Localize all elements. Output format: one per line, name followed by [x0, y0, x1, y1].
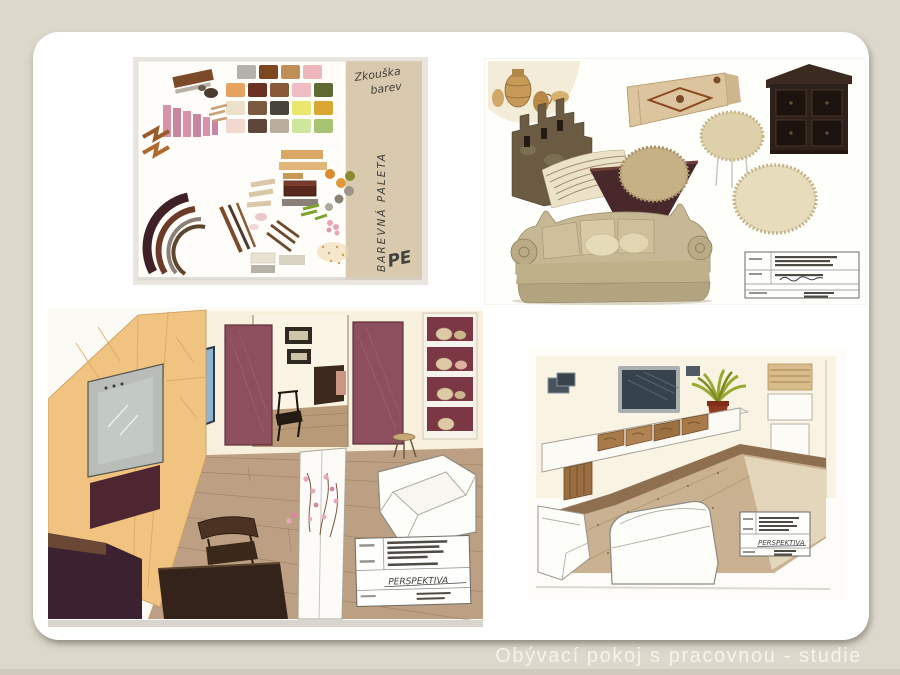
- palette-swatch: [314, 83, 333, 97]
- palette-swatch: [292, 119, 311, 133]
- palette-swatch: [303, 65, 322, 79]
- moodboard-image: [484, 58, 866, 305]
- drawing-titleblock: PERSPEKTIVA: [740, 512, 810, 556]
- wall-frame-small: [686, 366, 700, 376]
- color-test-sheet-image: Zkouška barev BAREVNÁ PALETA PE: [133, 57, 428, 285]
- red-shelving-unit: [423, 313, 477, 439]
- planter-divider: [298, 448, 346, 619]
- color-test-sheet-drawing: Zkouška barev BAREVNÁ PALETA PE: [133, 57, 428, 285]
- palette-swatch: [314, 119, 333, 133]
- scan-edge: [48, 620, 483, 627]
- slide-caption: Obývací pokoj s pracovnou - studie: [495, 645, 862, 668]
- desk: [158, 563, 288, 619]
- pouf-cream-big-photo: [734, 165, 816, 233]
- right-cabinet: [768, 364, 812, 456]
- palette-swatch: [292, 83, 311, 97]
- moodboard-collage: [484, 58, 866, 305]
- palette-swatch: [237, 65, 256, 79]
- presentation-slide: Zkouška barev BAREVNÁ PALETA PE: [0, 0, 900, 675]
- palette-swatch: [270, 101, 289, 115]
- dark-cabinet-photo: [766, 64, 852, 154]
- slide-edge-shading: [0, 669, 900, 675]
- wall-tv: [618, 366, 680, 413]
- palette-swatch: [270, 119, 289, 133]
- palette-swatch: [292, 101, 311, 115]
- palette-swatch: [248, 83, 267, 97]
- slide-content-card: Zkouška barev BAREVNÁ PALETA PE: [33, 32, 869, 640]
- scan-shadow: [138, 277, 422, 280]
- palette-swatch: [248, 101, 267, 115]
- palette-swatch: [248, 119, 267, 133]
- pouf-tan-photo: [620, 147, 688, 201]
- drawing-titleblock: PERSPEKTIVA: [355, 536, 471, 607]
- palette-swatch: [226, 119, 245, 133]
- wood-drawer-unit: [564, 462, 592, 500]
- perspective-drawing-small: PERSPEKTIVA: [528, 348, 846, 600]
- palette-swatch: [270, 83, 289, 97]
- palette-swatch: [314, 101, 333, 115]
- study-room-perspective: PERSPEKTIVA: [528, 348, 846, 600]
- palette-swatch: [226, 83, 245, 97]
- sofa-photo: [511, 204, 712, 305]
- living-room-perspective: PERSPEKTIVA: [48, 307, 483, 627]
- palette-swatch: [281, 65, 300, 79]
- perspective-drawing-large: PERSPEKTIVA: [48, 307, 483, 627]
- palette-swatch: [259, 65, 278, 79]
- moodboard-titleblock: [745, 252, 859, 298]
- palette-swatch: [226, 101, 245, 115]
- white-sofa-main: [610, 501, 718, 584]
